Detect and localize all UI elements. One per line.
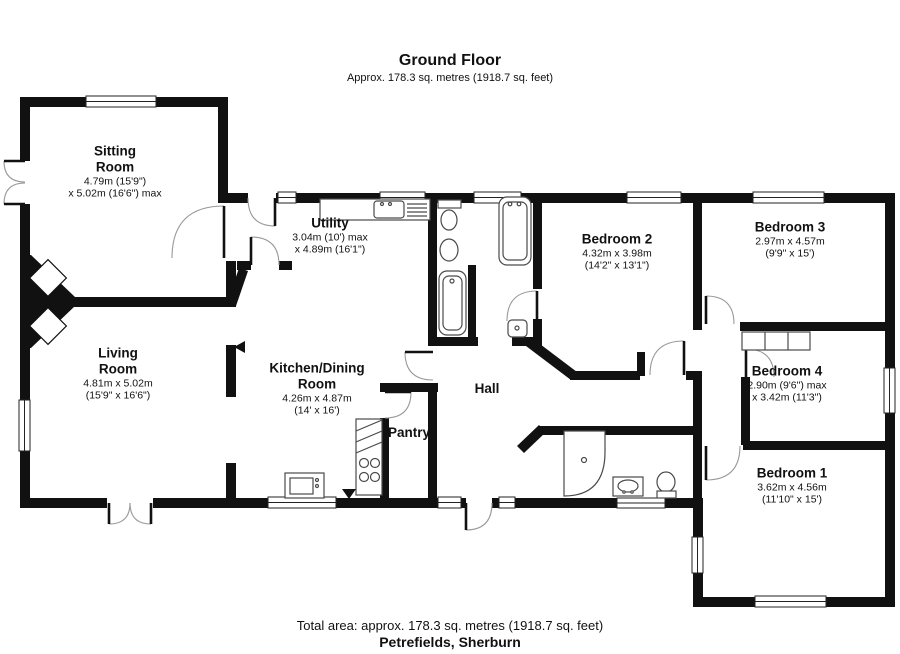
door-arc	[251, 237, 279, 265]
room-label-bedroom-2: Bedroom 2 4.32m x 3.98m (14'2" x 13'1")	[582, 232, 653, 273]
room-label-living-room: Living Room 4.81m x 5.02m (15'9" x 16'6"…	[83, 346, 152, 403]
window	[86, 96, 156, 107]
window	[753, 192, 824, 203]
door-arc	[172, 206, 224, 258]
door-arc	[405, 352, 433, 380]
window	[499, 497, 515, 508]
window	[617, 498, 665, 508]
door-arc	[385, 392, 411, 418]
toilet-icon	[657, 472, 675, 492]
room-label-hall: Hall	[475, 381, 500, 397]
room-label-kitchen-dining: Kitchen/Dining Room 4.26m x 4.87m (14' x…	[257, 361, 377, 418]
door-arc	[4, 161, 25, 182]
room-label-bedroom-4: Bedroom 4 2.90m (9'6") max x 3.42m (11'3…	[747, 364, 826, 405]
door-arc	[706, 296, 734, 324]
door-arc	[248, 198, 275, 226]
window	[278, 192, 296, 203]
window	[19, 400, 30, 451]
cooker-icon	[356, 419, 382, 495]
room-label-pantry: Pantry	[388, 425, 430, 441]
wardrobe-icon	[742, 332, 810, 350]
window	[438, 497, 461, 508]
fireplace-icon	[20, 255, 75, 348]
window	[268, 497, 336, 508]
window	[692, 537, 703, 573]
door-arc	[466, 503, 492, 530]
room-label-bedroom-1: Bedroom 1 3.62m x 4.56m (11'10" x 15')	[757, 466, 828, 507]
door-arc	[650, 341, 684, 375]
door-arc	[109, 503, 130, 524]
property-name: Petrefields, Sherburn	[0, 634, 900, 650]
basin-icon	[440, 239, 458, 261]
door-arc	[4, 183, 25, 204]
toilet-icon	[438, 200, 461, 208]
total-area-text: Total area: approx. 178.3 sq. metres (19…	[0, 618, 900, 633]
floorplan-drawing	[0, 0, 900, 654]
room-label-utility: Utility 3.04m (10') max x 4.89m (16'1")	[292, 216, 368, 257]
arrow-marker	[342, 489, 356, 499]
window	[755, 596, 826, 607]
floorplan-page: Ground Floor Approx. 178.3 sq. metres (1…	[0, 0, 900, 654]
shower-icon	[564, 431, 605, 496]
window	[627, 192, 681, 203]
door-arc	[706, 446, 740, 480]
window	[884, 368, 895, 413]
room-label-sitting-room: Sitting Room 4.79m (15'9") x 5.02m (16'6…	[68, 144, 161, 201]
room-label-bedroom-3: Bedroom 3 2.97m x 4.57m (9'9" x 15')	[755, 220, 826, 261]
door-arc	[507, 291, 537, 321]
door-arc	[130, 503, 151, 524]
plan-footer: Total area: approx. 178.3 sq. metres (19…	[0, 618, 900, 650]
